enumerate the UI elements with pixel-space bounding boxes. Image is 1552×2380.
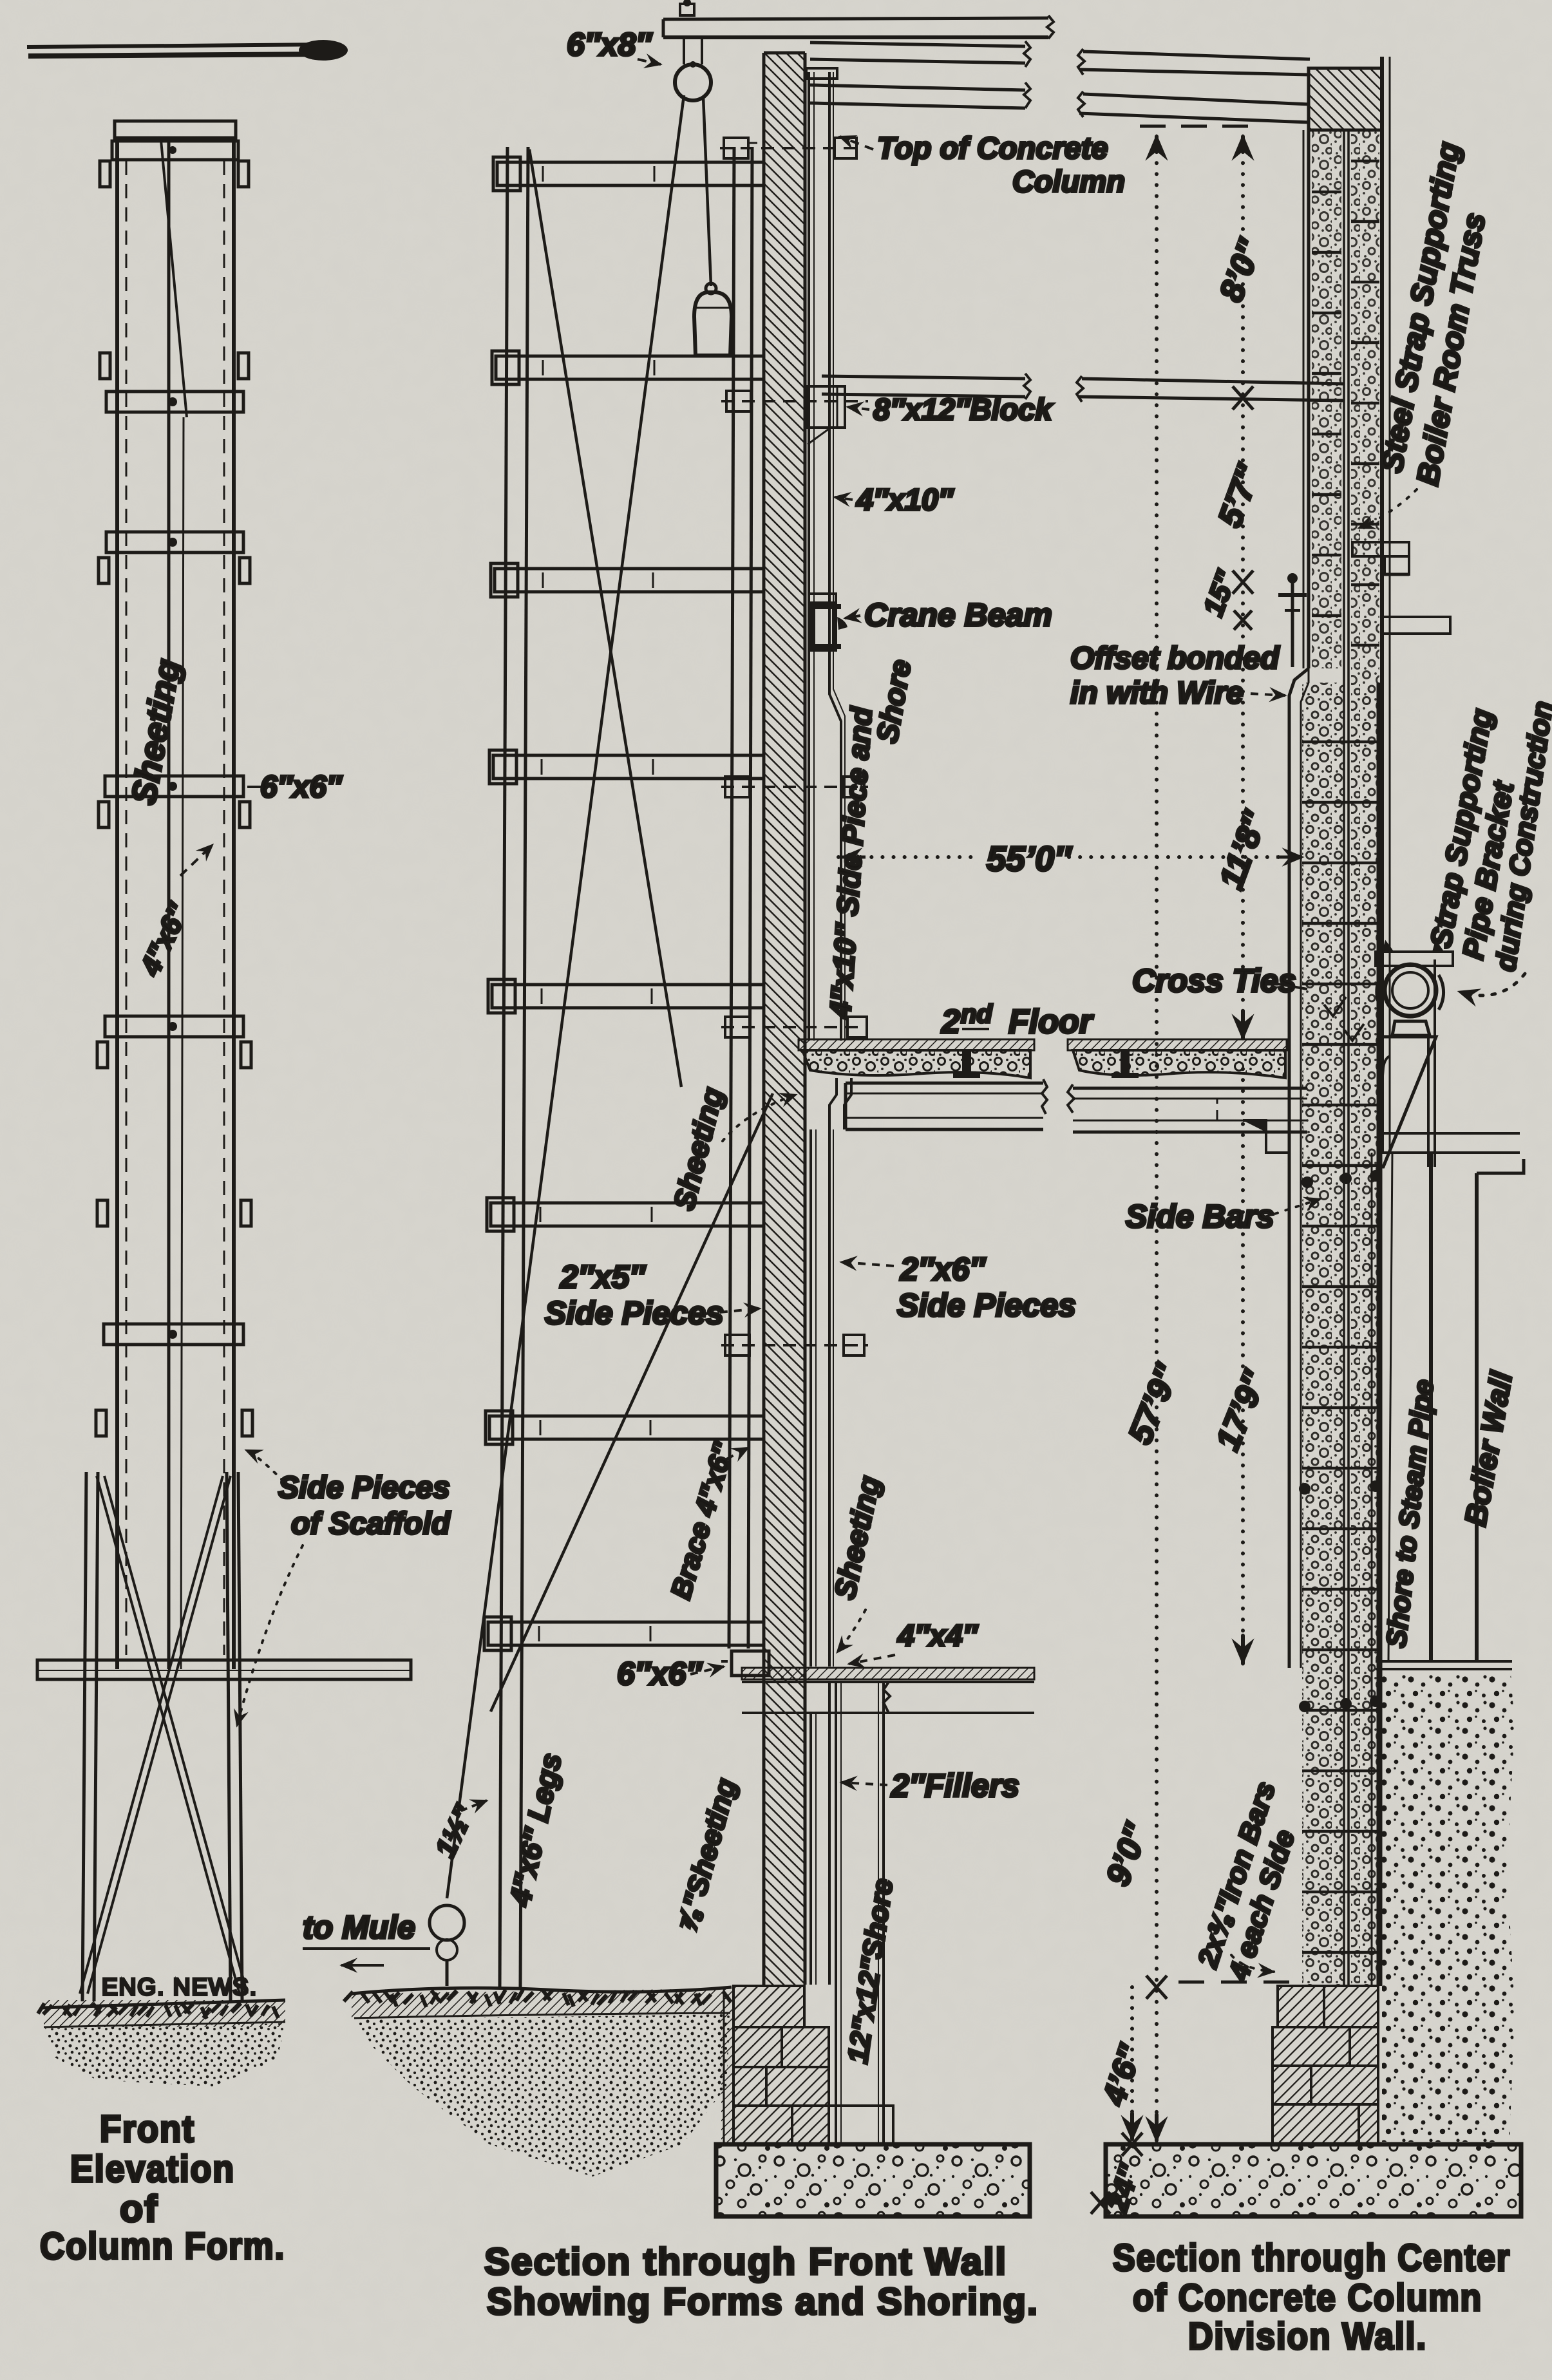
svg-text:6″x8″: 6″x8″ bbox=[567, 26, 652, 62]
svg-text:2″x6″: 2″x6″ bbox=[900, 1251, 986, 1287]
svg-text:of: of bbox=[120, 2188, 158, 2230]
svg-text:of Concrete Column: of Concrete Column bbox=[1133, 2277, 1482, 2319]
svg-text:to Mule: to Mule bbox=[303, 1909, 415, 1945]
svg-text:4″x4″: 4″x4″ bbox=[897, 1618, 979, 1652]
svg-text:6″x6″: 6″x6″ bbox=[260, 770, 343, 804]
svg-text:Division Wall.: Division Wall. bbox=[1188, 2316, 1427, 2357]
svg-text:Section through Front Wall: Section through Front Wall bbox=[484, 2241, 1007, 2283]
svg-text:Showing Forms and Shoring.: Showing Forms and Shoring. bbox=[487, 2281, 1039, 2323]
svg-text:Column Form.: Column Form. bbox=[40, 2225, 285, 2267]
svg-text:Side Pieces: Side Pieces bbox=[897, 1287, 1076, 1323]
svg-text:Elevation: Elevation bbox=[70, 2148, 235, 2190]
svg-text:Crane Beam: Crane Beam bbox=[864, 597, 1052, 633]
svg-text:6″x6″: 6″x6″ bbox=[617, 1656, 703, 1692]
svg-text:Column: Column bbox=[1012, 164, 1125, 198]
svg-text:2: 2 bbox=[941, 1003, 960, 1041]
svg-text:Section through Center: Section through Center bbox=[1113, 2237, 1511, 2279]
svg-text:nd: nd bbox=[961, 1000, 993, 1028]
svg-text:Offset bonded: Offset bonded bbox=[1070, 641, 1280, 675]
svg-text:in with Wire: in with Wire bbox=[1070, 676, 1244, 710]
svg-text:2″x5″: 2″x5″ bbox=[560, 1259, 646, 1295]
svg-text:55’0″: 55’0″ bbox=[987, 840, 1072, 878]
svg-text:Front: Front bbox=[100, 2108, 195, 2150]
svg-text:4″x10″: 4″x10″ bbox=[856, 482, 954, 516]
svg-text:Side Pieces: Side Pieces bbox=[278, 1471, 450, 1505]
svg-text:Top of Concrete: Top of Concrete bbox=[877, 131, 1108, 165]
svg-text:Side Pieces: Side Pieces bbox=[545, 1295, 724, 1331]
svg-text:2″Fillers: 2″Fillers bbox=[891, 1768, 1019, 1804]
svg-text:Floor: Floor bbox=[1008, 1003, 1094, 1041]
svg-text:Side Bars: Side Bars bbox=[1126, 1198, 1274, 1234]
svg-text:ENG. NEWS.: ENG. NEWS. bbox=[102, 1974, 258, 2000]
svg-text:Cross Ties: Cross Ties bbox=[1132, 963, 1296, 999]
svg-text:of Scaffold: of Scaffold bbox=[291, 1507, 451, 1541]
